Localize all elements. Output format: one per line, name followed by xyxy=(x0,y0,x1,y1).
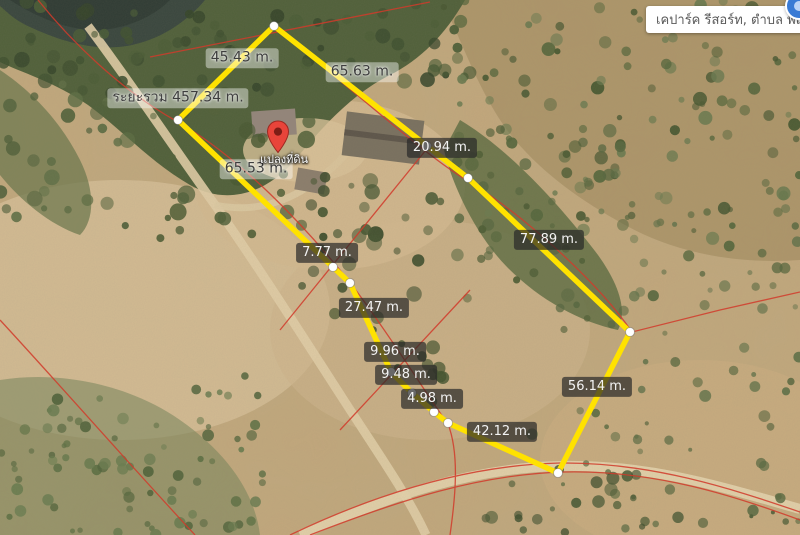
vertex-dot[interactable] xyxy=(329,263,338,272)
place-name-text: เคปาร์ค รีสอร์ท, ตำบล พฤต xyxy=(656,13,800,28)
vertex-dot[interactable] xyxy=(423,142,432,151)
pin-label: แปลงที่ดิน xyxy=(260,150,308,168)
vertex-dot[interactable] xyxy=(174,116,183,125)
place-name-card[interactable]: เคปาร์ค รีสอร์ท, ตำบล พฤต xyxy=(646,6,800,33)
vertex-dot[interactable] xyxy=(387,368,396,377)
measure-polygon xyxy=(174,22,635,478)
location-pin-icon[interactable] xyxy=(266,120,290,154)
vertex-dot[interactable] xyxy=(270,22,279,31)
vertex-dot[interactable] xyxy=(408,389,417,398)
vertex-dot[interactable] xyxy=(346,279,355,288)
measurement-layer xyxy=(0,0,800,535)
map-canvas[interactable]: 45.43 m.65.63 m.65.53 m.20.94 m.77.89 m.… xyxy=(0,0,800,535)
vertex-dot[interactable] xyxy=(554,469,563,478)
vertex-dot[interactable] xyxy=(430,408,439,417)
vertex-dot[interactable] xyxy=(626,328,635,337)
measured-boundary-line[interactable] xyxy=(178,26,630,473)
vertex-dot[interactable] xyxy=(444,419,453,428)
vertex-dot[interactable] xyxy=(464,174,473,183)
